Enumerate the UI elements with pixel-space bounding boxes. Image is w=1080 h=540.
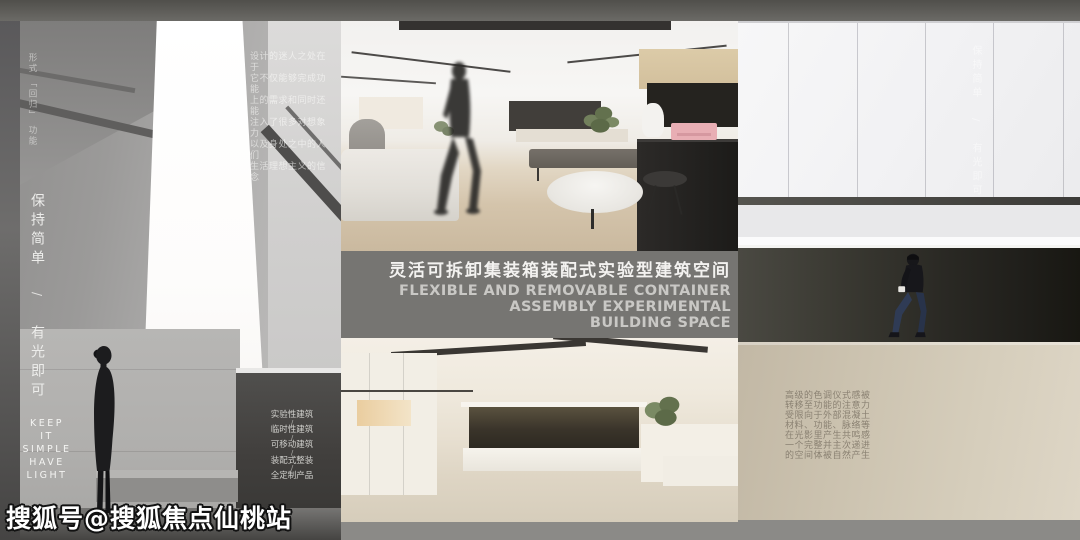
ceiling-slot	[399, 21, 671, 30]
intro-line: 注入了很多对想象力	[250, 118, 334, 140]
center-bottom-frame-strip	[341, 522, 738, 540]
slogan-vertical: 保持简单 / 有光即可	[27, 193, 47, 408]
intro-line: 以及身处之中的人们	[250, 140, 334, 162]
round-coffee-table	[547, 171, 643, 213]
lower-wall-strip	[738, 205, 1080, 237]
walking-person-blurred	[429, 59, 493, 227]
right-beige-wall-photo: 高级的色调仪式感被 转移至功能的注意力 受限向于外部混凝土 材料、功能、脉络等 …	[738, 342, 1080, 520]
intro-paragraph: 设计的迷人之处在于 它不仅能够完成功能 上的需求和同时还能 注入了很多对想象力 …	[250, 52, 334, 184]
banner-title-zh: 灵活可拆卸集装箱装配式实验型建筑空间	[341, 259, 731, 283]
description-line: 高级的色调仪式感被	[785, 391, 887, 401]
faint-slogan-part1: 保持简单	[970, 45, 981, 101]
panel-seam	[993, 23, 994, 197]
description-line: 受限向于外部混凝土	[785, 411, 887, 421]
poster-root: 形式 「回归」 功能 设计的迷人之处在于 它不仅能够完成功能 上的需求和同时还能…	[0, 0, 1080, 540]
right-walkway-photo	[738, 245, 1080, 342]
banner-title-en-line: ASSEMBLY EXPERIMENTAL	[341, 299, 731, 315]
intro-line: 它不仅能够完成功能	[250, 74, 334, 96]
table-leg	[591, 209, 594, 229]
pink-typewriter	[671, 123, 717, 140]
center-top-photo	[341, 21, 738, 251]
intro-line: 生活理想主义的信念	[250, 162, 334, 184]
left-photo-panel: 形式 「回归」 功能 设计的迷人之处在于 它不仅能够完成功能 上的需求和同时还能…	[0, 21, 341, 540]
slogan-zh-part2: 有光即可	[29, 325, 45, 401]
title-banner: 灵活可拆卸集装箱装配式实验型建筑空间 FLEXIBLE AND REMOVABL…	[341, 251, 738, 338]
white-sculpture	[642, 103, 664, 137]
panel-seam	[925, 23, 926, 197]
slogan-en-line: HAVE	[8, 456, 86, 469]
bright-base-strip	[738, 237, 1080, 245]
slogan-zh-part1: 保持简单	[29, 193, 45, 269]
banner-title-en-line: FLEXIBLE AND REMOVABLE CONTAINER	[341, 283, 731, 299]
slogan-english: KEEP IT SIMPLE HAVE LIGHT	[8, 417, 86, 482]
right-top-photo: 保持简单 / 有光即可	[738, 21, 1080, 245]
dark-horizontal-band	[738, 197, 1080, 205]
faint-slogan-divider: /	[970, 118, 981, 125]
banner-title-en-line: BUILDING SPACE	[341, 315, 731, 331]
panel-seam	[788, 23, 789, 197]
standing-woman-figure	[80, 343, 124, 518]
panel-seam	[857, 23, 858, 197]
panel-seam	[1063, 23, 1064, 197]
wall-top-edge	[738, 21, 1080, 23]
plant	[637, 394, 689, 434]
walking-person-figure	[880, 250, 942, 342]
wall-highlight	[738, 342, 1080, 345]
typewriter-keys	[677, 133, 711, 136]
slogan-en-line: IT	[8, 430, 86, 443]
wall-seam	[18, 369, 240, 370]
low-desk	[663, 456, 738, 486]
description-line: 一个完整并主次递进	[785, 441, 887, 451]
intro-line: 上的需求和同时还能	[250, 96, 334, 118]
wall-line	[341, 76, 436, 85]
lit-niche	[357, 400, 411, 426]
category-item: 全定制产品	[243, 473, 341, 481]
slogan-en-line: SIMPLE	[8, 443, 86, 456]
slogan-en-line: LIGHT	[8, 469, 86, 482]
tripod-side-table	[643, 171, 687, 187]
slogan-en-line: KEEP	[8, 417, 86, 430]
plant	[579, 105, 623, 143]
top-frame-strip	[0, 0, 1080, 21]
dark-opening	[469, 407, 639, 448]
intro-line: 设计的迷人之处在于	[250, 52, 334, 74]
faint-slogan-part2: 有光即可	[970, 143, 981, 199]
description-line: 转移至功能的注意力	[785, 401, 887, 411]
sohu-watermark: 搜狐号@搜狐焦点仙桃站	[6, 499, 292, 535]
wall-line	[341, 390, 473, 392]
right-bottom-frame-strip	[738, 520, 1080, 540]
description-paragraph: 高级的色调仪式感被 转移至功能的注意力 受限向于外部混凝土 材料、功能、脉络等 …	[785, 391, 887, 461]
category-list: 实验性建筑 / 临时性建筑 / 可移动建筑 / 装配式整装 / 全定制产品	[243, 412, 341, 480]
reception-desk	[463, 448, 645, 471]
bench-leg	[537, 168, 539, 181]
center-bottom-photo	[341, 338, 738, 522]
description-line: 材料、功能、脉络等	[785, 421, 887, 431]
slogan-divider: /	[30, 292, 44, 301]
description-line: 在光影里产生共鸣感	[785, 431, 887, 441]
wall-cap-line	[738, 245, 1080, 248]
left-side-vertical-label: 形式 「回归」 功能	[26, 53, 38, 183]
description-line: 的空间体被自然产生	[785, 451, 887, 461]
faint-vertical-slogan: 保持简单 / 有光即可	[968, 45, 983, 220]
